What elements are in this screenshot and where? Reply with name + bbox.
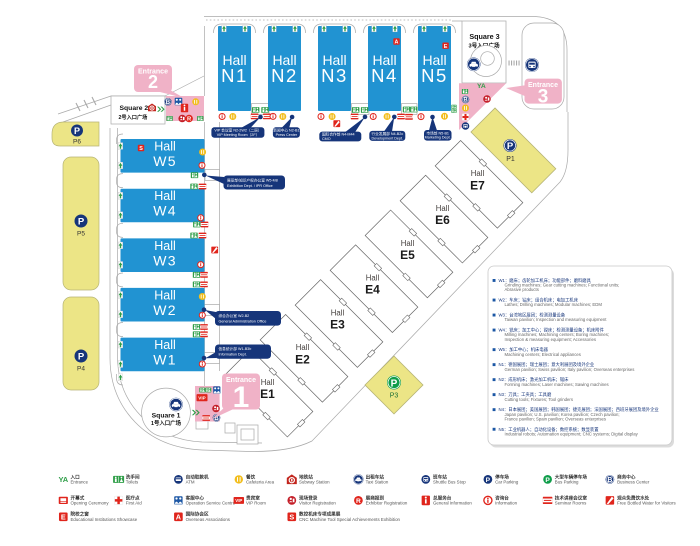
- svg-text:N5: N5: [421, 65, 448, 86]
- svg-text:W2: W2: [153, 302, 176, 318]
- svg-text:P1: P1: [506, 156, 515, 163]
- svg-text:Hall: Hall: [296, 343, 310, 352]
- svg-text:Exhibition Dept. / IPR Office: Exhibition Dept. / IPR Office: [227, 184, 273, 188]
- svg-text:Hall: Hall: [471, 169, 485, 178]
- svg-text:Shuttle Bus Stop: Shuttle Bus Stop: [433, 480, 466, 485]
- svg-text:General Information: General Information: [433, 501, 472, 506]
- svg-text:CNC Machine Tool Special Achie: CNC Machine Tool Special Achievements Ex…: [299, 517, 401, 522]
- svg-text:综合办公室 W2-B2: 综合办公室 W2-B2: [219, 313, 250, 318]
- svg-text:行业发展部 N4-B2c: 行业发展部 N4-B2c: [371, 131, 403, 136]
- svg-text:Cafeteria Area: Cafeteria Area: [246, 480, 275, 485]
- svg-text:市场部 N5-B1: 市场部 N5-B1: [426, 130, 449, 135]
- svg-text:E4: E4: [365, 283, 380, 297]
- svg-text:Hall: Hall: [261, 378, 275, 387]
- svg-text:1号入口广场: 1号入口广场: [151, 419, 182, 427]
- svg-text:P3: P3: [390, 393, 399, 400]
- svg-text:Marketing Dept.: Marketing Dept.: [425, 136, 451, 140]
- svg-text:Subway Station: Subway Station: [299, 480, 330, 485]
- svg-text:1: 1: [233, 381, 250, 414]
- svg-text:Square 2: Square 2: [120, 105, 149, 112]
- svg-text:Entrance: Entrance: [71, 480, 89, 485]
- svg-text:P6: P6: [73, 139, 81, 146]
- svg-text:P: P: [507, 141, 514, 152]
- svg-text:P5: P5: [77, 231, 85, 238]
- svg-text:Hall: Hall: [154, 139, 176, 153]
- svg-text:Square 1: Square 1: [152, 413, 181, 420]
- svg-text:Free Bottled Water for Visitor: Free Bottled Water for Visitors: [617, 501, 676, 506]
- svg-text:W5: W5: [153, 153, 176, 169]
- svg-text:German pavilion; Swiss pavilio: German pavilion; Swiss pavilion; Italy p…: [505, 367, 635, 372]
- svg-text:2号入口广场: 2号入口广场: [119, 113, 148, 121]
- svg-text:2: 2: [148, 72, 158, 92]
- svg-text:Business Center: Business Center: [617, 480, 650, 485]
- svg-text:N3: N3: [321, 65, 348, 86]
- svg-text:P4: P4: [77, 366, 85, 373]
- svg-text:Industrial robots; Automation: Industrial robots; Automation equipment;…: [505, 431, 639, 436]
- svg-text:France pavilion; Spain pavilio: France pavilion; Spain pavilion; Oversea…: [505, 416, 607, 421]
- svg-text:Machining centers; Electrical: Machining centers; Electrical appliances: [505, 352, 581, 357]
- svg-text:E3: E3: [330, 318, 345, 332]
- svg-text:Car Parking: Car Parking: [495, 480, 519, 485]
- svg-text:Hall: Hall: [154, 338, 176, 352]
- svg-text:VIP Room: VIP Room: [246, 501, 266, 506]
- svg-text:Hall: Hall: [154, 189, 176, 203]
- svg-text:3: 3: [538, 87, 549, 108]
- svg-text:Abrasive products: Abrasive products: [505, 287, 539, 292]
- svg-text:N1: N1: [221, 65, 248, 86]
- svg-text:Hall: Hall: [154, 239, 176, 253]
- svg-text:Forming machines; Laser machin: Forming machines; Laser machines; Sawing…: [505, 382, 609, 387]
- svg-text:Hall: Hall: [436, 204, 450, 213]
- svg-text:P: P: [74, 126, 80, 136]
- svg-text:Operation Service Centre: Operation Service Centre: [186, 501, 236, 506]
- svg-text:Square 3: Square 3: [469, 32, 499, 41]
- svg-text:Exhibitor Registration: Exhibitor Registration: [366, 501, 408, 506]
- svg-text:Toilets: Toilets: [126, 480, 139, 485]
- svg-text:P: P: [78, 217, 85, 228]
- svg-text:信息统计部 W1-B3b: 信息统计部 W1-B3b: [219, 346, 252, 351]
- svg-text:E6: E6: [435, 213, 450, 227]
- svg-text:W1: W1: [153, 352, 176, 368]
- svg-text:Information Dept.: Information Dept.: [219, 353, 247, 357]
- svg-text:新闻中心 N2-B1: 新闻中心 N2-B1: [273, 128, 299, 133]
- svg-text:Overseas Associations: Overseas Associations: [186, 517, 231, 522]
- svg-text:VIP Meeting Room（2F）: VIP Meeting Room（2F）: [217, 132, 260, 137]
- svg-text:Information: Information: [495, 501, 518, 506]
- svg-text:ATM: ATM: [186, 480, 195, 485]
- svg-text:Lathes; Drilling machines; Mod: Lathes; Drilling machines; Modular machi…: [505, 302, 603, 307]
- svg-text:展览部/知识产权办公室 W5-M8: 展览部/知识产权办公室 W5-M8: [227, 177, 278, 182]
- svg-text:Cutting tools; Fixtures; Tool: Cutting tools; Fixtures; Tool grinders: [505, 397, 573, 402]
- svg-text:Taxi Station: Taxi Station: [366, 480, 389, 485]
- svg-text:P: P: [78, 352, 85, 363]
- svg-text:Seminar Rooms: Seminar Rooms: [555, 501, 587, 506]
- svg-text:E2: E2: [295, 352, 310, 366]
- svg-text:Hall: Hall: [331, 308, 345, 317]
- svg-text:W3: W3: [153, 252, 176, 268]
- svg-text:Hall: Hall: [366, 274, 380, 283]
- svg-text:W4: W4: [153, 203, 176, 219]
- svg-text:Press Center: Press Center: [276, 133, 298, 137]
- svg-text:N4: N4: [371, 65, 398, 86]
- svg-text:Opening Ceremony: Opening Ceremony: [71, 501, 110, 506]
- svg-text:Development Dept.: Development Dept.: [372, 136, 404, 140]
- svg-text:E7: E7: [470, 178, 485, 192]
- svg-text:Hall: Hall: [401, 239, 415, 248]
- svg-text:VIP 会议室 N2-2W2（二层）: VIP 会议室 N2-2W2（二层）: [214, 128, 261, 133]
- svg-text:Educational Institutions Showc: Educational Institutions Showcase: [71, 517, 138, 522]
- svg-text:Taiwan pavilion; Inspection an: Taiwan pavilion; Inspection and measurin…: [505, 317, 608, 322]
- svg-text:E1: E1: [260, 387, 275, 401]
- svg-text:P: P: [391, 378, 398, 389]
- svg-text:Visitor Registration: Visitor Registration: [299, 501, 336, 506]
- svg-text:E5: E5: [400, 248, 415, 262]
- svg-text:Bus Parking: Bus Parking: [555, 480, 579, 485]
- svg-text:First Aid: First Aid: [126, 501, 142, 506]
- svg-text:General Administration Office: General Administration Office: [219, 319, 267, 323]
- svg-text:CMO: CMO: [322, 137, 331, 141]
- svg-text:N2: N2: [271, 65, 298, 86]
- svg-text:Inspection & measuring equipme: Inspection & measuring equipment; Access…: [505, 337, 596, 342]
- svg-text:Hall: Hall: [154, 288, 176, 302]
